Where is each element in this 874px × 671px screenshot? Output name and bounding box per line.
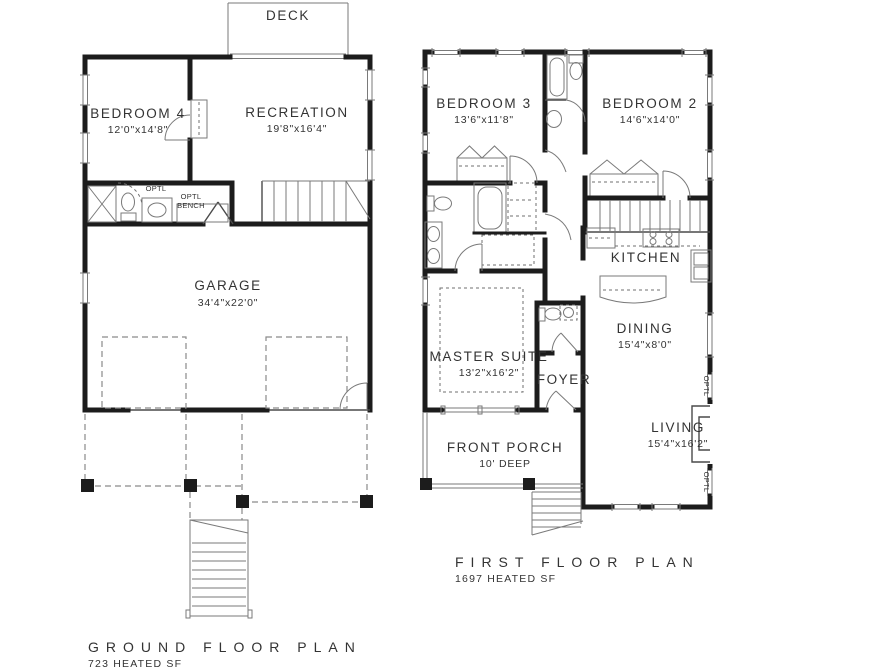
garage-label: GARAGE [194, 278, 261, 293]
recreation-dims: 19'8"x16'4" [267, 123, 328, 135]
master-window-band [441, 406, 519, 414]
rear-deck [81, 414, 373, 618]
living-label: LIVING [651, 420, 705, 435]
double-sink-vanity [425, 222, 442, 268]
tub-icon [547, 55, 567, 99]
ground-interior-walls [85, 57, 370, 224]
porch-stairs [532, 492, 583, 535]
dining-label: DINING [617, 321, 674, 336]
bench-note-line1: OPTL [181, 192, 202, 201]
bedroom3-closet [457, 146, 507, 183]
front-porch-dims: 10' DEEP [479, 458, 531, 470]
porch-post [420, 478, 432, 490]
garage-side-door [340, 383, 367, 410]
bedroom3-dims: 13'6"x11'8" [454, 114, 514, 126]
ground-floor-plan: DECK [80, 3, 375, 670]
master-suite [425, 244, 545, 410]
deck-label: DECK [266, 8, 310, 23]
floor-plan-sheet: DECK [0, 0, 874, 671]
porch-post [523, 478, 535, 490]
toilet-icon [121, 193, 136, 221]
sink-icon [560, 305, 577, 320]
bedroom2-closet [590, 160, 658, 196]
optional-door-note: OPTL [146, 184, 167, 193]
recreation-label: RECREATION [245, 105, 349, 120]
master-suite-dims: 13'2"x16'2" [459, 367, 520, 379]
ground-floor-area: 723 HEATED SF [88, 658, 182, 670]
bedroom3-label: BEDROOM 3 [436, 96, 531, 111]
sink-icon [142, 198, 172, 222]
toilet-icon [427, 196, 452, 211]
front-porch [420, 412, 583, 535]
kitchen-island [600, 276, 666, 303]
toilet-icon [569, 55, 583, 80]
bedroom3-wall [425, 156, 545, 183]
bedroom4-label: BEDROOM 4 [90, 106, 185, 121]
front-porch-label: FRONT PORCH [447, 440, 563, 455]
walk-in-closet [482, 235, 534, 265]
first-floor-plan: BEDROOM 3 13'6"x11'8" BEDROOM 2 14'6"x14… [420, 48, 715, 585]
deck-post [360, 495, 373, 508]
kitchen [583, 228, 711, 303]
deck-post [236, 495, 249, 508]
first-floor-area: 1697 HEATED SF [455, 573, 556, 585]
front-door [546, 391, 576, 410]
garage-dims: 34'4"x22'0" [198, 297, 259, 309]
foyer-label: FOYER [537, 372, 592, 387]
bedroom2-label: BEDROOM 2 [602, 96, 697, 111]
master-suite-label: MASTER SUITE [430, 349, 549, 364]
bedroom2-wall [585, 171, 710, 198]
optional-window-note-lower: OPTL [702, 472, 711, 493]
exterior-stairs [186, 520, 252, 618]
deck-post [81, 479, 94, 492]
master-bath [425, 183, 571, 271]
tub-icon [474, 183, 506, 233]
bench-note-line2: BENCH [177, 201, 205, 210]
optional-window-note-upper: OPTL [702, 376, 711, 397]
bedroom2-dims: 14'6"x14'0" [620, 114, 681, 126]
hall-bath [545, 52, 585, 232]
kitchen-label: KITCHEN [611, 250, 681, 265]
first-floor-caption: FIRST FLOOR PLAN [455, 554, 700, 570]
ground-stairs [262, 181, 370, 222]
deck-post [184, 479, 197, 492]
bedroom4-dims: 12'0"x14'8" [108, 124, 169, 136]
ground-floor-caption: GROUND FLOOR PLAN [88, 639, 362, 655]
sink-icon [547, 111, 562, 128]
dining-dims: 15'4"x8'0" [618, 339, 672, 351]
toilet-icon [539, 308, 561, 321]
living-dims: 15'4"x16'2" [648, 438, 709, 450]
first-stairs [585, 200, 710, 232]
garage-doors [102, 337, 367, 410]
vanity [508, 183, 536, 233]
ground-bath: OPTL OPTL BENCH [88, 183, 228, 222]
floor-plan-drawing: DECK [0, 0, 874, 671]
